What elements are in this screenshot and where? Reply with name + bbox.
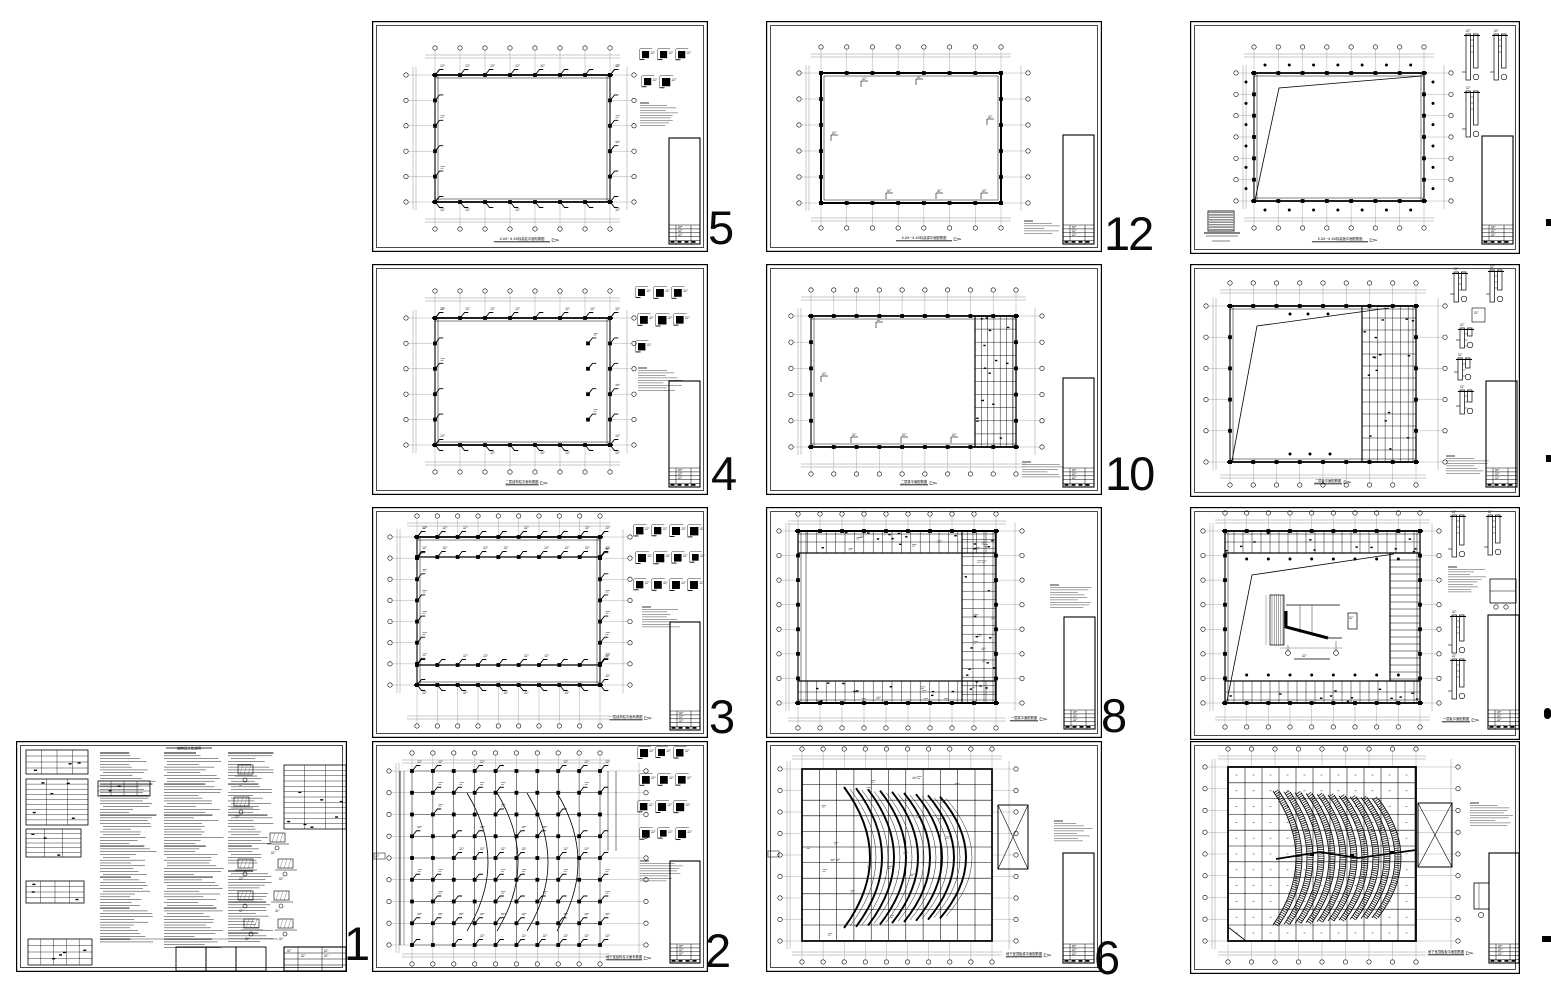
page-number-12: 12 (1104, 210, 1152, 257)
sheet-drawing: X.XX~X.XX标高板平面配筋图 (1190, 21, 1520, 254)
cropped-page-number-row4 (1542, 936, 1551, 942)
svg-text:X.XX~X.XX标高梁平面配筋图: X.XX~X.XX标高梁平面配筋图 (902, 235, 947, 240)
sheet-drawing: 地下室结构柱平面布置图 (372, 741, 708, 972)
svg-text:二层梁平面配筋图: 二层梁平面配筋图 (901, 479, 928, 484)
page-number-2: 2 (705, 927, 729, 974)
sheet-drawing: X.XX~X.XX标高柱平面布置图 (372, 21, 708, 252)
svg-text:地下室结构柱平面布置图: 地下室结构柱平面布置图 (606, 954, 643, 959)
sheet-10-beam-plan[interactable]: 二层梁平面配筋图 (766, 264, 1102, 495)
svg-text:一层板平面配筋图: 一层板平面配筋图 (1443, 716, 1470, 721)
page-number-5: 5 (708, 204, 732, 251)
svg-text:二层板平面配筋图: 二层板平面配筋图 (1315, 478, 1342, 483)
sheet-4-column-plan[interactable]: 二层结构柱平面布置图 (372, 264, 708, 495)
sheet-col4-row3-slab-plan[interactable]: 一层板平面配筋图 (1190, 507, 1520, 740)
sheet-drawing: 二层结构柱平面布置图 (372, 264, 708, 495)
sheet-col4-row1-slab-plan[interactable]: X.XX~X.XX标高板平面配筋图 (1190, 21, 1520, 254)
sheet-1-general-notes[interactable]: 结构设计总说明 (16, 741, 347, 972)
sheet-drawing: 一层梁平面配筋图 (766, 507, 1102, 738)
svg-text:X.XX~X.XX标高板平面配筋图: X.XX~X.XX标高板平面配筋图 (1318, 236, 1363, 241)
cropped-page-number-row3 (1544, 708, 1551, 719)
sheet-5-column-plan[interactable]: X.XX~X.XX标高柱平面布置图 (372, 21, 708, 252)
page-number-6: 6 (1094, 934, 1118, 981)
page-number-1: 1 (344, 920, 368, 967)
svg-text:一层梁平面配筋图: 一层梁平面配筋图 (1011, 715, 1038, 720)
svg-text:结构设计总说明: 结构设计总说明 (177, 746, 201, 751)
sheet-6-beam-plan[interactable]: 地下室顶板梁平面配筋图 (766, 741, 1102, 972)
page-number-4: 4 (711, 450, 735, 497)
svg-text:X.XX~X.XX标高柱平面布置图: X.XX~X.XX标高柱平面布置图 (500, 236, 545, 241)
sheet-2-column-plan[interactable]: 地下室结构柱平面布置图 (372, 741, 708, 972)
drawing-set-canvas: 结构设计总说明 X.XX~X.XX标高柱平面布置图 二层结构柱平面布置图 一层结… (0, 0, 1551, 985)
svg-text:地下室顶板梁平面配筋图: 地下室顶板梁平面配筋图 (1006, 951, 1043, 956)
page-number-3: 3 (709, 693, 733, 740)
sheet-drawing: 一层结构柱平面布置图 (372, 507, 708, 738)
sheet-drawing: 地下室顶板板平面配筋图 (1190, 741, 1520, 974)
sheet-col4-row4-slab-plan[interactable]: 地下室顶板板平面配筋图 (1190, 741, 1520, 974)
svg-text:地下室顶板板平面配筋图: 地下室顶板板平面配筋图 (1428, 949, 1465, 954)
cropped-page-number-row2 (1546, 455, 1551, 462)
svg-text:二层结构柱平面布置图: 二层结构柱平面布置图 (506, 479, 540, 484)
sheet-drawing: 结构设计总说明 (16, 741, 347, 972)
sheet-drawing: 地下室顶板梁平面配筋图 (766, 741, 1102, 972)
page-number-8: 8 (1101, 692, 1125, 739)
sheet-drawing: X.XX~X.XX标高梁平面配筋图 (766, 21, 1102, 252)
svg-text:一层结构柱平面布置图: 一层结构柱平面布置图 (610, 714, 644, 719)
sheet-drawing: 一层板平面配筋图 (1190, 507, 1520, 740)
sheet-drawing: 二层板平面配筋图 (1190, 264, 1520, 497)
sheet-12-beam-plan[interactable]: X.XX~X.XX标高梁平面配筋图 (766, 21, 1102, 252)
page-number-10: 10 (1105, 450, 1153, 497)
sheet-3-column-plan[interactable]: 一层结构柱平面布置图 (372, 507, 708, 738)
cropped-page-number-row1 (1546, 219, 1551, 226)
sheet-col4-row2-slab-plan[interactable]: 二层板平面配筋图 (1190, 264, 1520, 497)
sheet-8-beam-plan[interactable]: 一层梁平面配筋图 (766, 507, 1102, 738)
sheet-drawing: 二层梁平面配筋图 (766, 264, 1102, 495)
